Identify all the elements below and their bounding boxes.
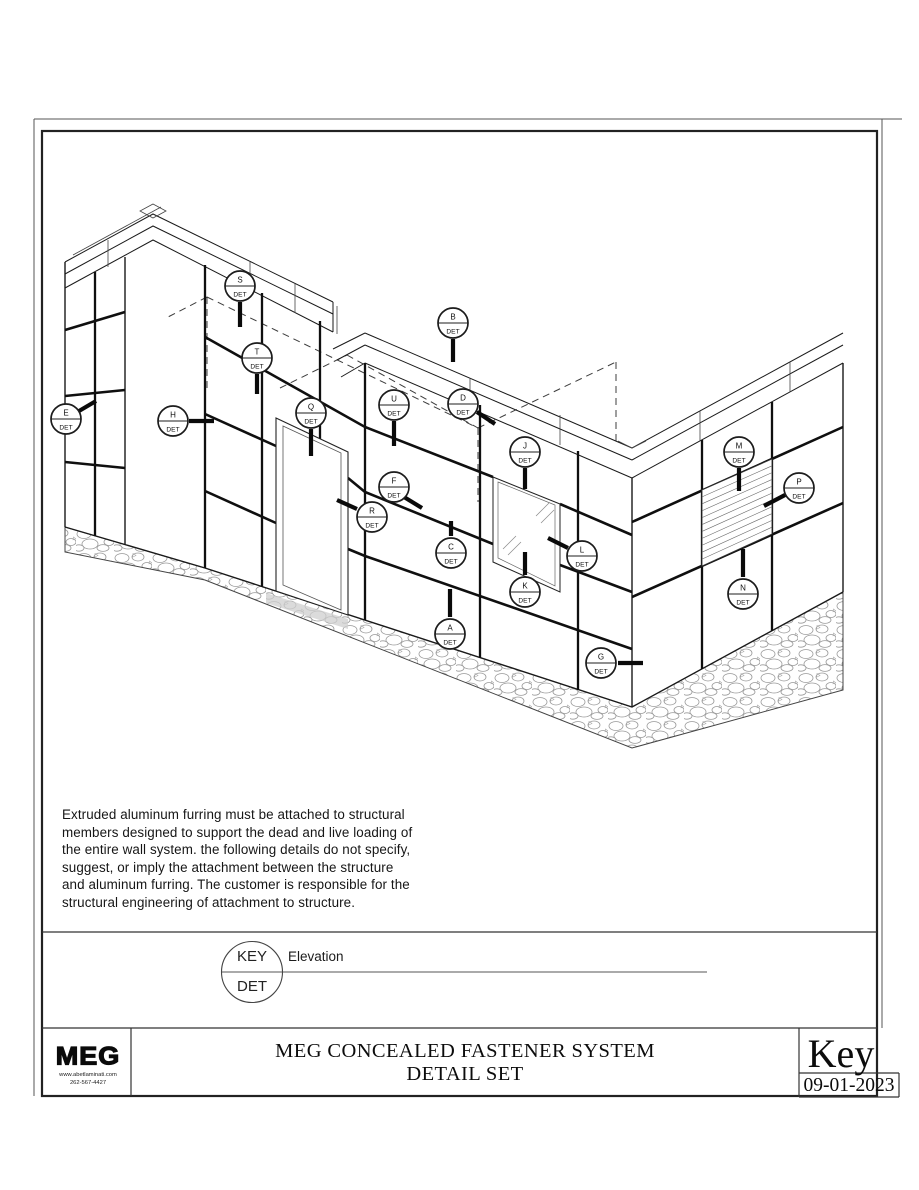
callout-letter: U [391,395,397,404]
sheet-title-line2: DETAIL SET [131,1063,799,1086]
callout-det-label: DET [444,559,457,566]
callout-letter: M [736,442,743,451]
logo-website: www.abetlaminati.com [40,1072,136,1078]
callout-det-label: DET [443,640,456,647]
callout-det-label: DET [575,562,588,569]
callout-det-label: DET [736,600,749,607]
legend-det-label: DET [221,978,283,995]
callout-det-label: DET [233,292,246,299]
callout-letter: T [255,348,260,357]
callout-letter: E [63,409,68,418]
callout-letter: N [740,584,746,593]
callout-det-label: DET [446,329,459,336]
callout-det-label: DET [732,458,745,465]
callout-letter: C [448,543,454,552]
callout-det-label: DET [304,419,317,426]
callout-det-label: DET [166,427,179,434]
callout-det-label: DET [365,523,378,530]
door [266,418,348,629]
callout-det-label: DET [792,494,805,501]
callout-det-label: DET [518,598,531,605]
callout-letter: A [447,624,453,633]
sheet-title-line1: MEG CONCEALED FASTENER SYSTEM [131,1040,799,1063]
meg-logo: MEG [44,1042,132,1071]
callout-det-label: DET [387,411,400,418]
sheet-title: MEG CONCEALED FASTENER SYSTEM DETAIL SET [131,1040,799,1085]
callout-letter: F [392,477,397,486]
sheet-date: 09-01-2023 [799,1075,899,1097]
callout-det-label: DET [387,493,400,500]
sheet-linework: SDETTDETBDETEDETHDETQDETUDETDDETJDETMDET… [0,0,919,1190]
general-note: Extruded aluminum furring must be attach… [62,806,434,912]
callout-letter: Q [308,403,314,412]
callout-det-label: DET [250,364,263,371]
callout-letter: D [460,394,466,403]
callout-letter: S [237,276,242,285]
callout-letter: K [522,582,528,591]
callout-letter: L [580,546,585,555]
callout-letter: B [450,313,455,322]
drawing-sheet: SDETTDETBDETEDETHDETQDETUDETDDETJDETMDET… [0,0,919,1190]
callout-letter: R [369,507,375,516]
logo-phone: 262-567-4427 [40,1080,136,1086]
callout-det-label: DET [518,458,531,465]
callout-letter: G [598,653,604,662]
legend-elevation-label: Elevation [288,949,344,964]
callout-letter: H [170,411,176,420]
detail-callout-B: BDET [438,308,468,362]
callout-det-label: DET [594,669,607,676]
callout-det-label: DET [456,410,469,417]
callout-letter: J [523,442,527,451]
callout-letter: P [796,478,801,487]
sheet-name: Key [799,1030,883,1077]
elevation-drawing [65,204,843,748]
legend-key-label: KEY [221,948,283,965]
callout-det-label: DET [59,425,72,432]
